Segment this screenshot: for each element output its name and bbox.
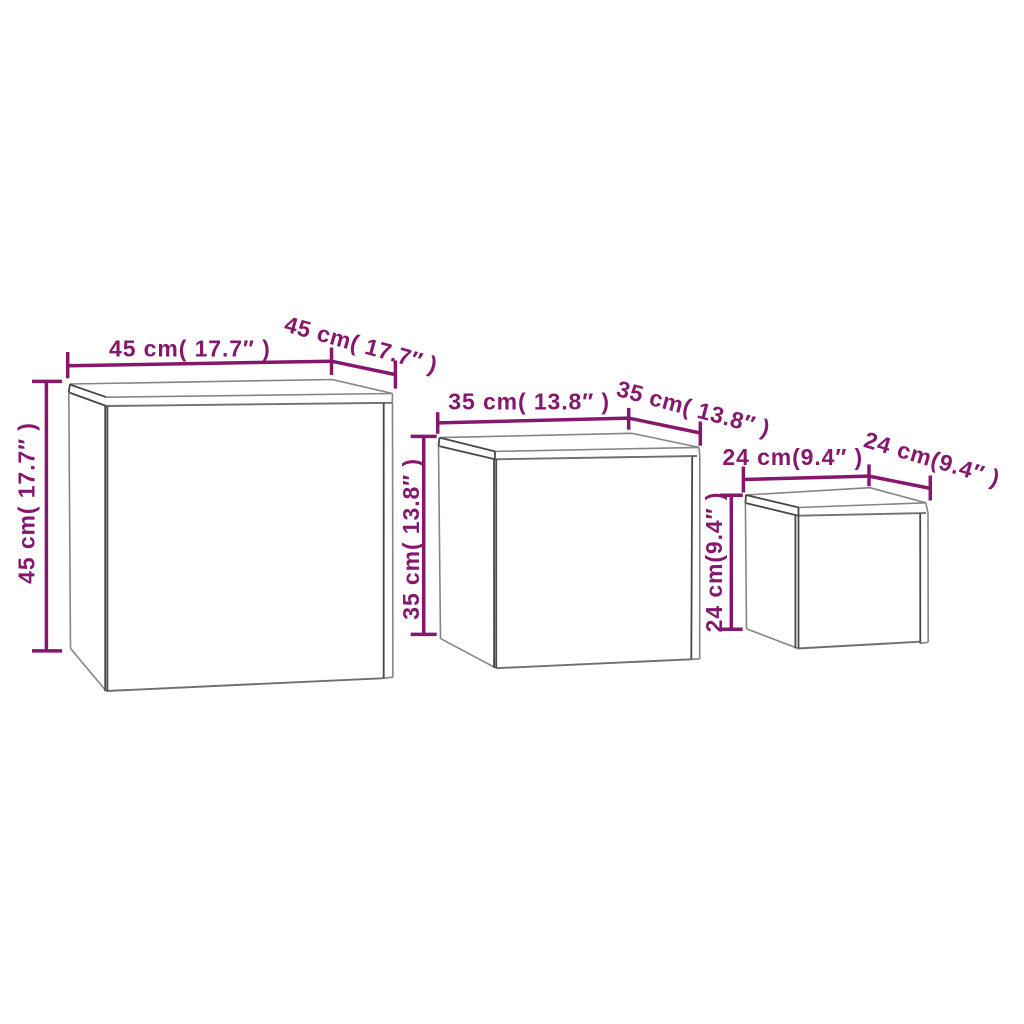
- svg-text:35 cm( 13.8″ ): 35 cm( 13.8″ ): [398, 458, 424, 620]
- svg-text:24 cm(9.4″ ): 24 cm(9.4″ ): [701, 492, 727, 633]
- svg-text:45 cm( 17.7″ ): 45 cm( 17.7″ ): [109, 335, 271, 361]
- svg-text:24 cm(9.4″ ): 24 cm(9.4″ ): [722, 444, 863, 470]
- svg-text:35 cm( 13.8″ ): 35 cm( 13.8″ ): [448, 388, 610, 414]
- svg-text:45 cm( 17.7″ ): 45 cm( 17.7″ ): [14, 422, 40, 584]
